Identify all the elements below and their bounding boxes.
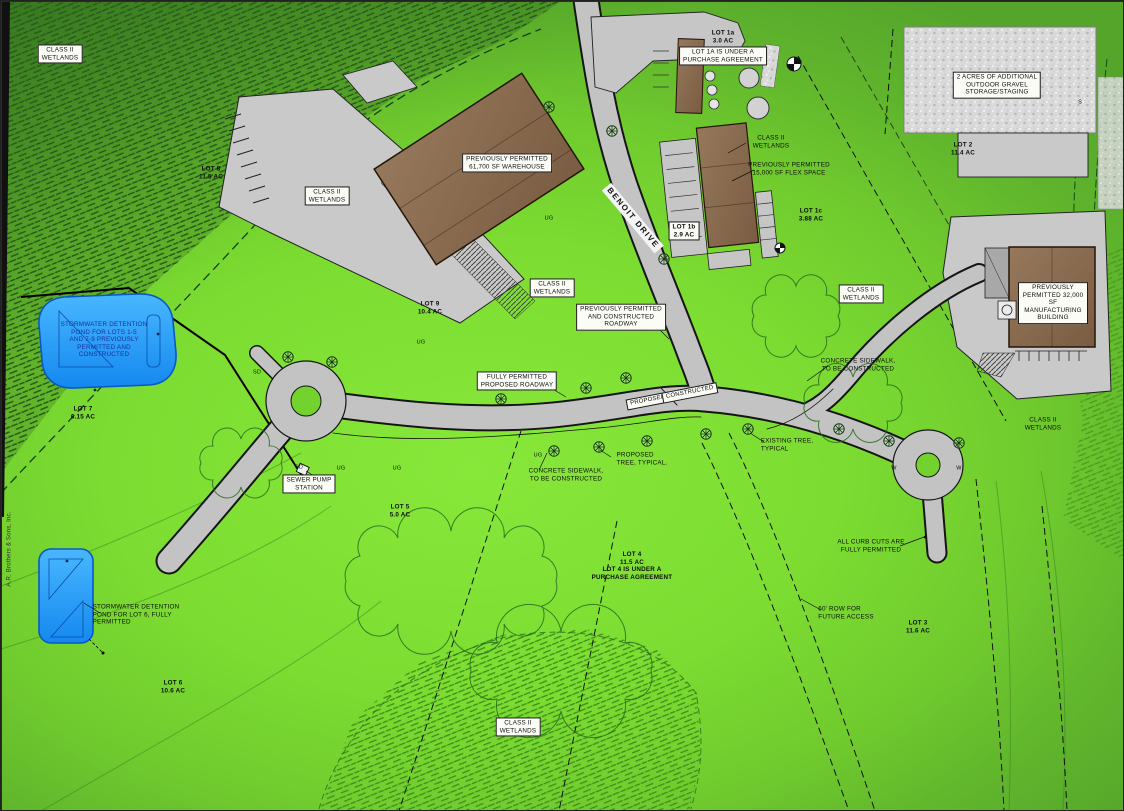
lot-1a-agreement: LOT 1A IS UNDER A PURCHASE AGREEMENT xyxy=(679,46,767,65)
wetlands-topleft: CLASS II WETLANDS xyxy=(38,44,83,63)
curb-cuts-label: ALL CURB CUTS ARE FULLY PERMITTED xyxy=(837,538,904,553)
side-note: A.R. Brothers & Sons, Inc. xyxy=(6,511,13,586)
lot-6-label: LOT 6 10.6 AC xyxy=(161,679,185,694)
lot-9-label: LOT 9 10.4 AC xyxy=(418,300,442,315)
util-sd-1: SD xyxy=(295,465,303,472)
util-ug-1: UG xyxy=(337,466,346,473)
gravel-label: 2 ACRES OF ADDITIONAL OUTDOOR GRAVEL STO… xyxy=(953,72,1041,99)
util-sd-2: SD xyxy=(253,370,261,377)
flex-space-label: PREVIOUSLY PERMITTED 15,000 SF FLEX SPAC… xyxy=(748,161,830,176)
util-ug-2: UG xyxy=(393,466,402,473)
util-w-2: W xyxy=(956,466,961,473)
manufacturing-label: PREVIOUSLY PERMITTED 32,000 SF MANUFACTU… xyxy=(1018,282,1088,324)
warehouse-label: PREVIOUSLY PERMITTED 61,700 SF WAREHOUSE xyxy=(462,153,552,172)
proposed-tag: PROPOSED xyxy=(626,391,671,410)
roadway-label: PREVIOUSLY PERMITTED AND CONSTRUCTED ROA… xyxy=(576,304,666,331)
wetlands-bottom: CLASS II WETLANDS xyxy=(496,717,541,736)
site-plan-sheet: CLASS II WETLANDSLOT 8 11.5 ACCLASS II W… xyxy=(0,0,1124,811)
fully-permitted-label: FULLY PERMITTED PROPOSED ROADWAY xyxy=(477,371,557,390)
wetlands-far-right: CLASS II WETLANDS xyxy=(1025,416,1062,431)
lot-1c-label: LOT 1c 3.88 AC xyxy=(799,207,823,222)
labels-layer: CLASS II WETLANDSLOT 8 11.5 ACCLASS II W… xyxy=(1,1,1123,810)
wetlands-mid: CLASS II WETLANDS xyxy=(530,278,575,297)
util-s-1: S xyxy=(1078,100,1082,107)
pond-1-label: STORMWATER DETENTION POND FOR LOTS 1-5 A… xyxy=(61,321,148,359)
existing-tree-label: EXISTING TREE, TYPICAL xyxy=(761,437,813,452)
sidewalk-south-label: CONCRETE SIDEWALK, TO BE CONSTRUCTED xyxy=(529,467,604,482)
row-label: 60' ROW FOR FUTURE ACCESS xyxy=(818,605,873,620)
wetlands-flex: CLASS II WETLANDS xyxy=(753,134,790,149)
lot-4-label: LOT 4 11.5 AC LOT 4 IS UNDER A PURCHASE … xyxy=(592,551,673,581)
lot-1a-label: LOT 1a 3.0 AC xyxy=(712,29,735,44)
wetlands-left: CLASS II WETLANDS xyxy=(305,186,350,205)
lot-2-label: LOT 2 11.4 AC xyxy=(951,141,975,156)
sidewalk-ne-label: CONCRETE SIDEWALK, TO BE CONSTRUCTED xyxy=(821,357,896,372)
wetlands-right: CLASS II WETLANDS xyxy=(839,284,884,303)
util-ug-5: UG xyxy=(417,340,426,347)
lot-1b-label: LOT 1b 2.9 AC xyxy=(669,221,700,240)
lot-7-label: LOT 7 6.15 AC xyxy=(71,405,95,420)
constructed-tag: CONSTRUCTED xyxy=(661,382,718,404)
lot-3-label: LOT 3 11.6 AC xyxy=(906,619,930,634)
pond-2-label: STORMWATER DETENTION POND FOR LOT 6, FUL… xyxy=(93,604,180,627)
proposed-tree-label: PROPOSED TREE, TYPICAL. xyxy=(617,451,668,466)
benoit-drive-label: BENOIT DRIVE xyxy=(602,183,664,253)
util-ug-3: UG xyxy=(534,453,543,460)
lot-8-label: LOT 8 11.5 AC xyxy=(199,165,223,180)
util-ug-4: UG xyxy=(545,216,554,223)
lot-5-label: LOT 5 5.0 AC xyxy=(390,503,411,518)
sewer-pump-label: SEWER PUMP STATION xyxy=(282,474,335,493)
util-w-1: W xyxy=(891,466,896,473)
